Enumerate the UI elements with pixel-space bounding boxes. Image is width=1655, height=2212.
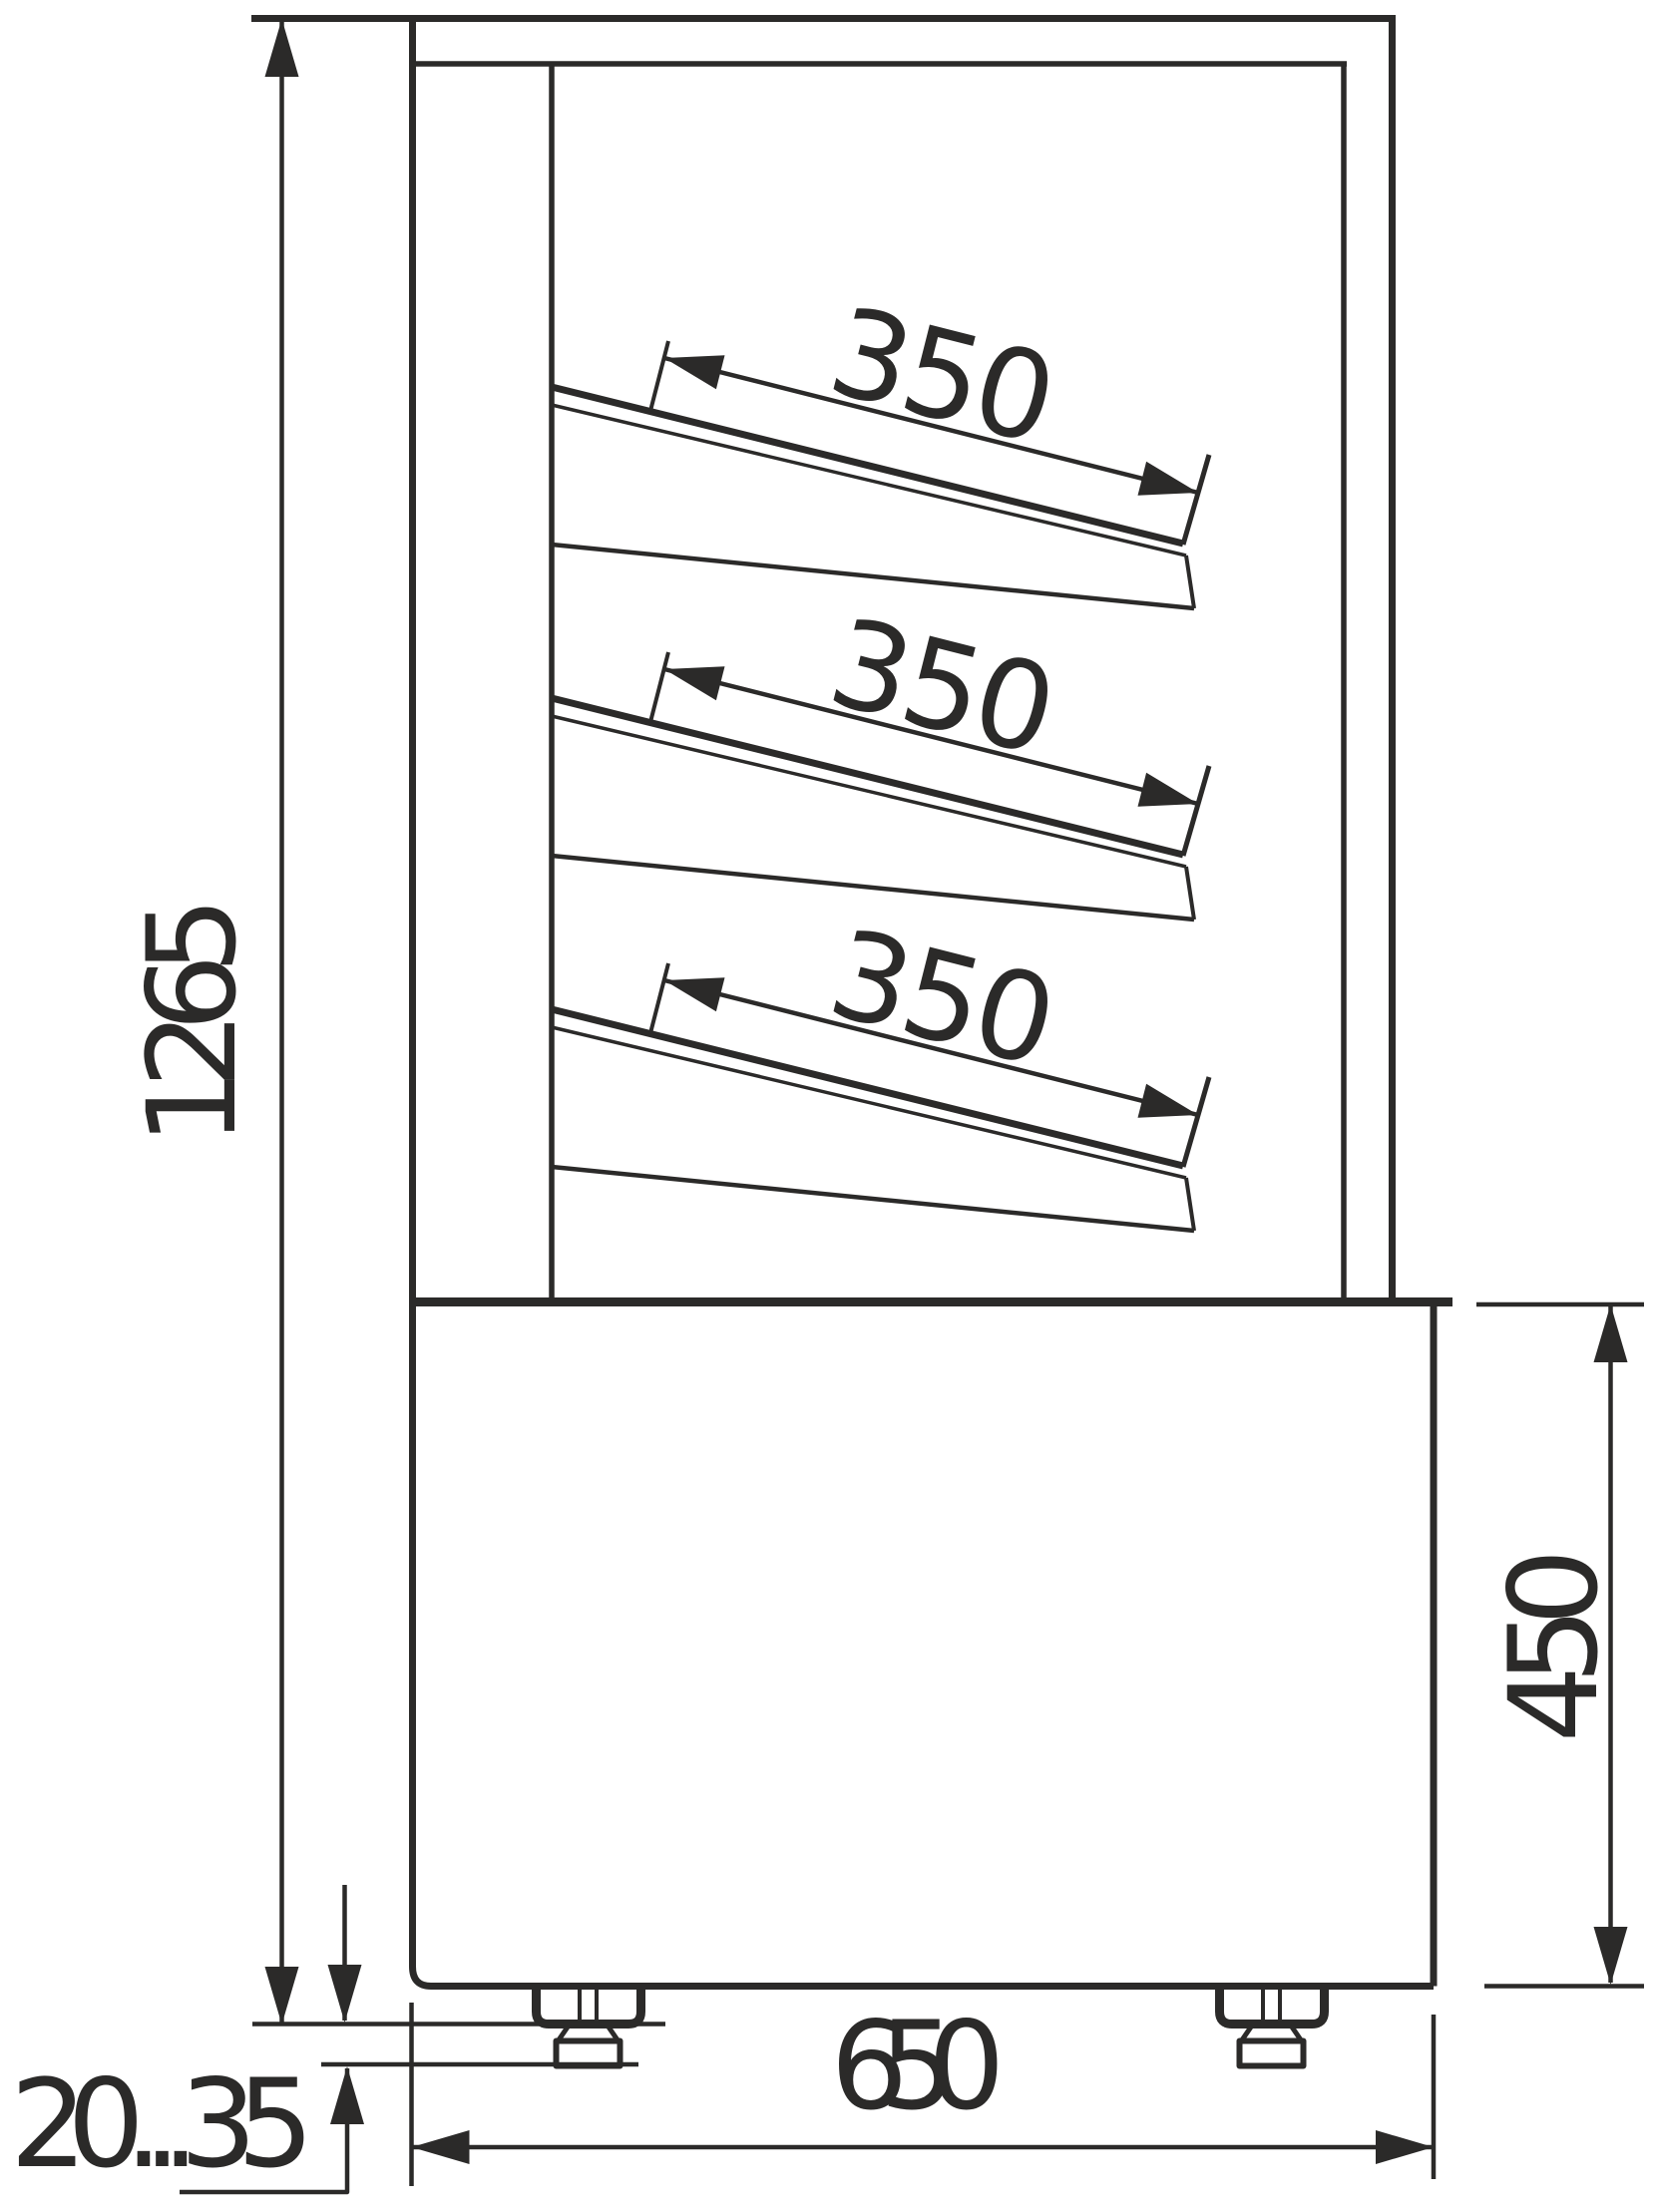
base-height-label: 450	[1483, 1549, 1625, 1743]
technical-drawing-page: 350 350	[0, 0, 1655, 2212]
arrowhead-top	[1594, 1304, 1628, 1362]
display-case-side-view-drawing: 350 350	[0, 0, 1655, 2212]
dimension-shelf-depth: 350	[650, 903, 1198, 1118]
arrowhead-bottom	[265, 1967, 299, 2025]
arrowhead-top	[265, 19, 299, 77]
foot-right	[1220, 1990, 1325, 2066]
foot-base-disc	[1240, 2041, 1304, 2066]
shelf-front-lip	[1183, 766, 1209, 856]
shelf-depth-label: 350	[817, 903, 1069, 1095]
shelf-front-edge	[1186, 867, 1194, 920]
foot-threaded-stem	[580, 1990, 597, 2025]
arrowhead-left	[412, 2130, 470, 2164]
arrowhead-up	[330, 2066, 364, 2124]
foot-threaded-stem	[1263, 1990, 1280, 2025]
arrowhead-front	[1138, 1084, 1199, 1118]
extension-tick	[650, 652, 668, 722]
shelf-front-edge	[1186, 555, 1194, 608]
shelf-front-lip	[1183, 1077, 1209, 1167]
shelf-depth-label: 350	[817, 591, 1069, 784]
dimension-shelf-depth: 350	[650, 591, 1198, 807]
leg-adjust-label: 20...35	[10, 2053, 314, 2195]
dimension-base-height: 450	[1476, 1304, 1644, 1987]
overall-height-label: 1265	[122, 897, 263, 1146]
arrowhead-bottom	[1594, 1927, 1628, 1985]
extension-tick	[650, 341, 668, 411]
shelf-depth-label: 350	[817, 280, 1069, 473]
foot-bracket	[1220, 1990, 1325, 2025]
shelf-3: 350	[552, 903, 1209, 1231]
arrowhead-front	[1138, 773, 1199, 807]
dimension-overall-height: 1265	[122, 19, 665, 2025]
foot-left	[537, 1990, 641, 2066]
arrowhead-back	[664, 355, 725, 389]
shelf-1: 350	[552, 280, 1209, 608]
foot-bracket	[537, 1990, 641, 2025]
arrowhead-down	[328, 1965, 362, 2023]
shelf-front-lip	[1183, 455, 1209, 545]
shelf-2: 350	[552, 591, 1209, 920]
shelf-front-edge	[1186, 1178, 1194, 1231]
extension-tick	[650, 963, 668, 1033]
shelf-bracket-bottom-line	[552, 1167, 1194, 1231]
arrowhead-back	[664, 666, 725, 700]
dimension-shelf-depth: 350	[650, 280, 1198, 496]
arrowhead-right	[1376, 2130, 1434, 2164]
arrowhead-front	[1138, 462, 1199, 496]
arrowhead-back	[664, 977, 725, 1011]
base-depth-label: 650	[831, 1996, 1006, 2137]
